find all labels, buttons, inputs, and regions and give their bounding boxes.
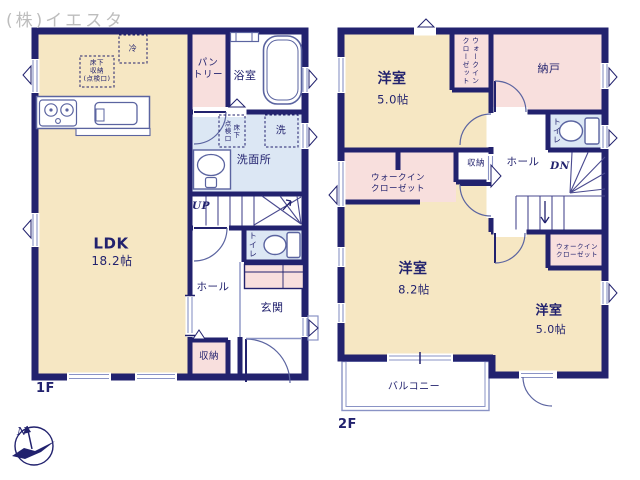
storeroom-label: 納戸	[538, 62, 561, 76]
bath-counter	[231, 33, 259, 42]
hall-2f-label: ホール	[507, 156, 540, 170]
compass: N	[12, 425, 55, 465]
room-b-label: 洋室	[399, 260, 428, 278]
wic-mid-label: ウォークイン クローゼット	[371, 173, 425, 195]
floorplan-page: N (株)イエスタ LDK 18.2帖 冷 床下 収納 (点検口) パン トリー…	[0, 0, 640, 480]
room-b-size: 8.2帖	[398, 283, 430, 298]
toilet-1f-label: トイレ	[247, 232, 258, 259]
ldk-size: 18.2帖	[91, 254, 132, 270]
compass-swoosh-icon	[12, 441, 55, 459]
wic-top-label: ウォークイン クローゼット	[461, 37, 480, 85]
bathroom-label: 浴室	[234, 69, 257, 83]
toilet-tank-2f	[585, 118, 599, 144]
watermark: (株)イエスタ	[6, 6, 125, 31]
toilet-2f-label: トイレ	[551, 118, 562, 145]
washroom-label: 洗面所	[237, 153, 272, 167]
room-ldk	[35, 31, 190, 377]
hall-1f-label: ホール	[197, 281, 230, 295]
ldk-label: LDK	[93, 234, 128, 254]
room-west-a	[341, 31, 455, 150]
floor2-label: 2F	[338, 417, 357, 434]
pantry-label: パン トリー	[193, 58, 223, 83]
room-a-size: 5.0帖	[377, 93, 409, 108]
storage-1f-label: 収納	[199, 351, 219, 363]
stairs-down-label: DN	[550, 160, 570, 174]
toilet-bowl-1f	[264, 236, 286, 255]
entrance-label: 玄関	[261, 301, 284, 315]
compass-north-label: N	[16, 425, 27, 438]
toilet-bowl-2f	[560, 121, 583, 141]
balcony-label: バルコニー	[388, 381, 440, 394]
room-c-size: 5.0帖	[536, 323, 567, 337]
room-c-label: 洋室	[535, 304, 562, 321]
underfloor-hatch-label: 床下 点検口	[222, 120, 240, 143]
laundry-label: 洗	[276, 125, 287, 138]
toilet-tank-1f	[287, 233, 300, 258]
storage-2f-label: 収納	[467, 158, 485, 169]
room-west-a-alcove	[452, 90, 491, 150]
room-a-label: 洋室	[378, 70, 407, 88]
shoe-cabinet	[245, 265, 304, 289]
floor1-label: 1F	[36, 381, 55, 398]
stairs-up-label: UP	[192, 200, 210, 214]
fridge-label: 冷	[129, 44, 138, 54]
wic-br-label: ウォークイン クローゼット	[556, 243, 598, 260]
room-west-b	[341, 202, 491, 358]
underfloor-storage-label: 床下 収納 (点検口)	[83, 59, 110, 82]
